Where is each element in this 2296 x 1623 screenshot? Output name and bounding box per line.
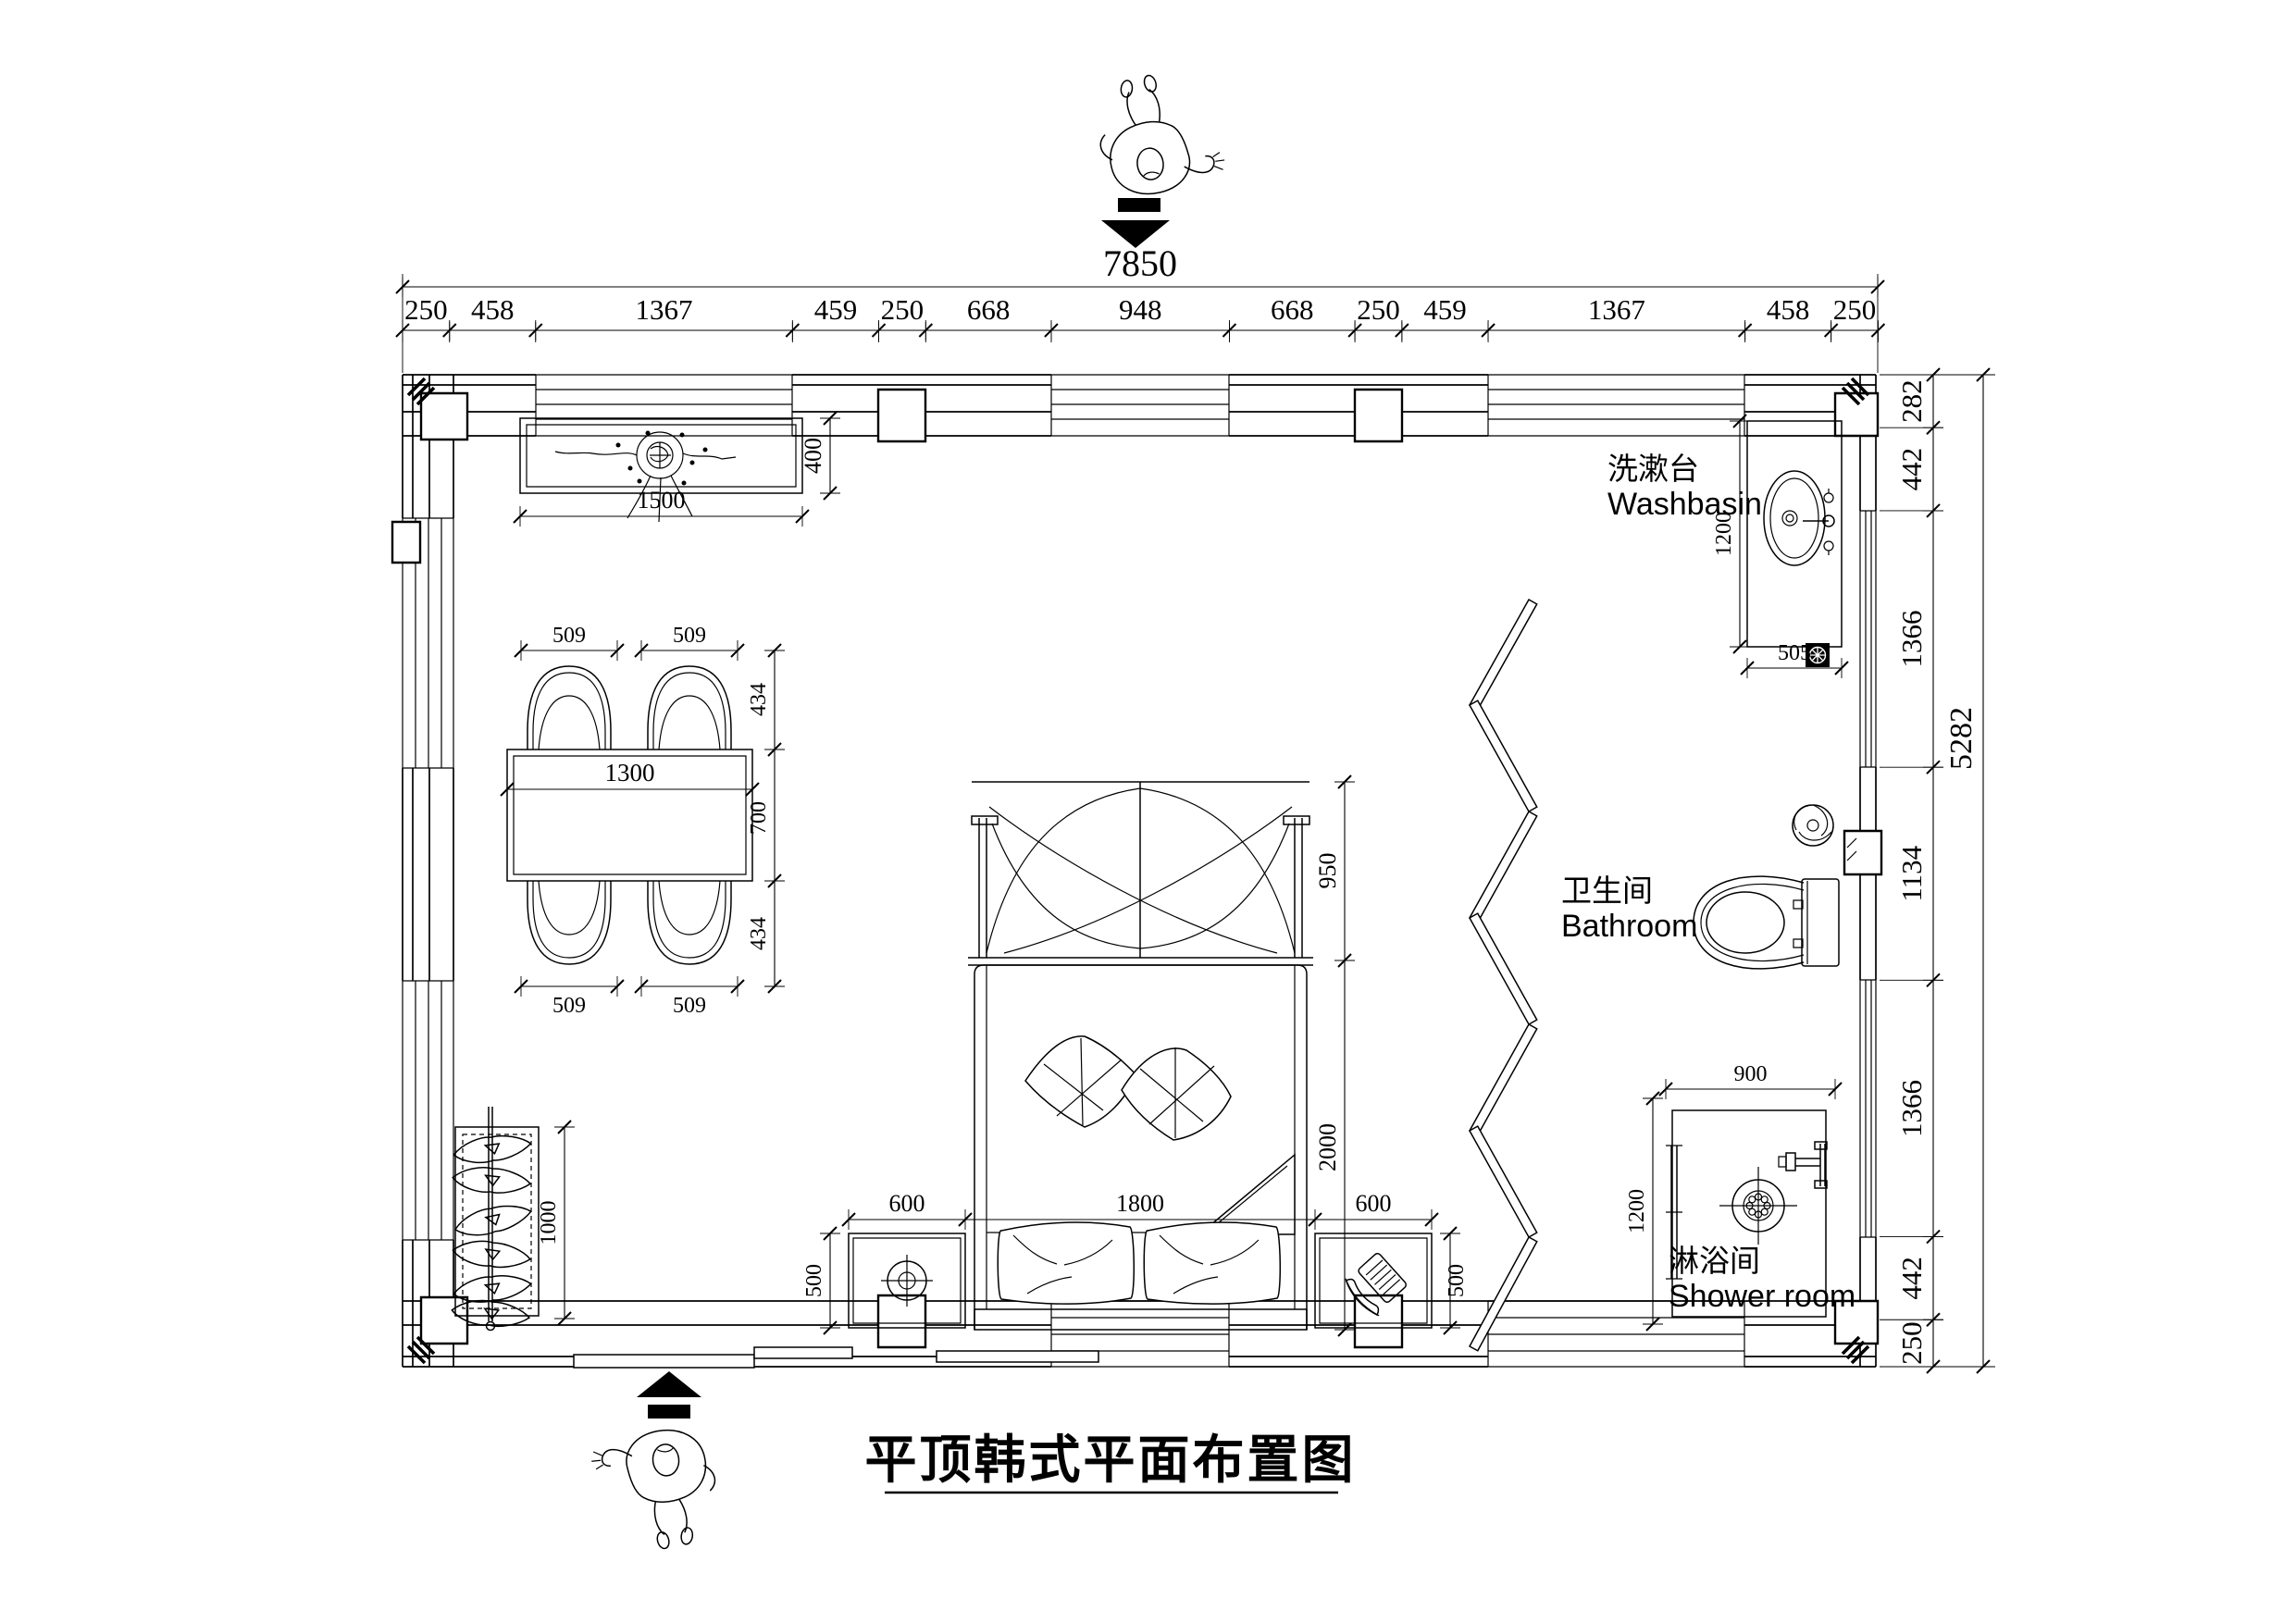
dimension-label: 1000 bbox=[537, 1201, 561, 1245]
entry-arrow-top bbox=[1101, 198, 1170, 248]
dimension-label: 600 bbox=[1356, 1190, 1392, 1217]
dimension-label: 250 bbox=[1357, 293, 1400, 326]
entry-arrow-bottom bbox=[637, 1371, 701, 1419]
dimension-label: 1134 bbox=[1895, 845, 1928, 901]
drawing-title: 平顶韩式平面布置图 bbox=[865, 1431, 1357, 1493]
dimension-label: 500 bbox=[802, 1264, 826, 1297]
person-bottom bbox=[590, 1426, 722, 1556]
dimension-label: 2000 bbox=[1314, 1123, 1341, 1171]
dining-chair bbox=[648, 881, 731, 964]
bed-pillow bbox=[1144, 1222, 1280, 1304]
dimension-label: 1367 bbox=[1588, 293, 1645, 326]
bed-group bbox=[968, 782, 1313, 1330]
dimension-label: 700 bbox=[747, 801, 771, 835]
dimension-label: 459 bbox=[814, 293, 858, 326]
drain-swirl-icon bbox=[1793, 805, 1833, 846]
dimension-label: 1500 bbox=[638, 487, 686, 514]
room-labels: 洗漱台 Washbasin 卫生间 Bathroom 淋浴间 Shower ro… bbox=[1561, 452, 1855, 1314]
washbasin-counter bbox=[1747, 421, 1842, 667]
dining-chair bbox=[648, 666, 731, 750]
dimension-label: 442 bbox=[1895, 1257, 1928, 1300]
bathroom-label-en: Bathroom bbox=[1561, 909, 1697, 944]
dimension-label: 950 bbox=[1314, 853, 1341, 889]
sink-basin-icon bbox=[1764, 471, 1834, 565]
exterior-walls bbox=[403, 375, 1876, 1367]
dimension-label: 509 bbox=[673, 994, 706, 1018]
dimension-label: 434 bbox=[747, 683, 771, 716]
decorative-cushion bbox=[1025, 1036, 1231, 1140]
dimension-label: 5282 bbox=[1944, 707, 1979, 770]
dimension-label: 509 bbox=[552, 994, 586, 1018]
dimension-label: 1366 bbox=[1895, 1080, 1928, 1137]
dimension-label: 1300 bbox=[605, 759, 655, 787]
dimension-label: 400 bbox=[800, 438, 826, 474]
dimension-label: 282 bbox=[1895, 379, 1928, 423]
dimension-label: 7850 bbox=[1103, 242, 1177, 284]
dining-set bbox=[507, 666, 752, 964]
dimension-label: 442 bbox=[1895, 448, 1928, 491]
dimension-label: 434 bbox=[747, 917, 771, 950]
shower-label-en: Shower room bbox=[1669, 1279, 1855, 1314]
nightstand-right bbox=[1315, 1233, 1432, 1328]
floor-plan-canvas: 洗漱台 Washbasin 卫生间 Bathroom 淋浴间 Shower ro… bbox=[0, 0, 2296, 1623]
dimension-label: 250 bbox=[1895, 1321, 1928, 1365]
dimension-label: 250 bbox=[1833, 293, 1877, 326]
dimension-label: 509 bbox=[552, 624, 586, 648]
dining-chair bbox=[527, 666, 611, 750]
folding-partition bbox=[1470, 600, 1537, 1351]
shower-valve-icon bbox=[1779, 1142, 1827, 1188]
dimension-label: 948 bbox=[1119, 293, 1162, 326]
dimension-label: 1200 bbox=[1712, 512, 1736, 556]
floor-plan-page: 洗漱台 Washbasin 卫生间 Bathroom 淋浴间 Shower ro… bbox=[0, 0, 2296, 1623]
bed-pillow bbox=[998, 1222, 1134, 1304]
dimension-label: 668 bbox=[1271, 293, 1314, 326]
page-title: 平顶韩式平面布置图 bbox=[865, 1431, 1357, 1489]
entrance-sliding-door bbox=[574, 1347, 1098, 1368]
dimension-label: 1200 bbox=[1625, 1189, 1649, 1233]
dimension-label: 668 bbox=[967, 293, 1011, 326]
dimension-label: 1367 bbox=[636, 293, 693, 326]
person-top bbox=[1092, 66, 1228, 200]
dimension-label: 900 bbox=[1734, 1062, 1768, 1086]
dimension-label: 458 bbox=[471, 293, 515, 326]
bathroom-label-zh: 卫生间 bbox=[1561, 873, 1653, 908]
toilet bbox=[1694, 876, 1839, 969]
dimension-label: 1800 bbox=[1116, 1190, 1164, 1217]
dimension-label: 600 bbox=[889, 1190, 925, 1217]
washbasin-label-en: Washbasin bbox=[1607, 487, 1762, 522]
washbasin-label-zh: 洗漱台 bbox=[1607, 452, 1699, 486]
dimension-label: 509 bbox=[673, 624, 706, 648]
shower-label-zh: 淋浴间 bbox=[1669, 1244, 1760, 1278]
shower-head-icon bbox=[1719, 1167, 1797, 1245]
dining-chair bbox=[527, 881, 611, 964]
dimension-label: 250 bbox=[881, 293, 925, 326]
dimension-label: 459 bbox=[1423, 293, 1467, 326]
bed-canopy bbox=[968, 782, 1313, 965]
dimension-label: 505 bbox=[1778, 641, 1811, 665]
dimension-label: 458 bbox=[1767, 293, 1810, 326]
dimension-label: 1366 bbox=[1895, 611, 1928, 668]
dimension-label: 500 bbox=[1445, 1264, 1469, 1297]
dimension-label: 250 bbox=[404, 293, 448, 326]
